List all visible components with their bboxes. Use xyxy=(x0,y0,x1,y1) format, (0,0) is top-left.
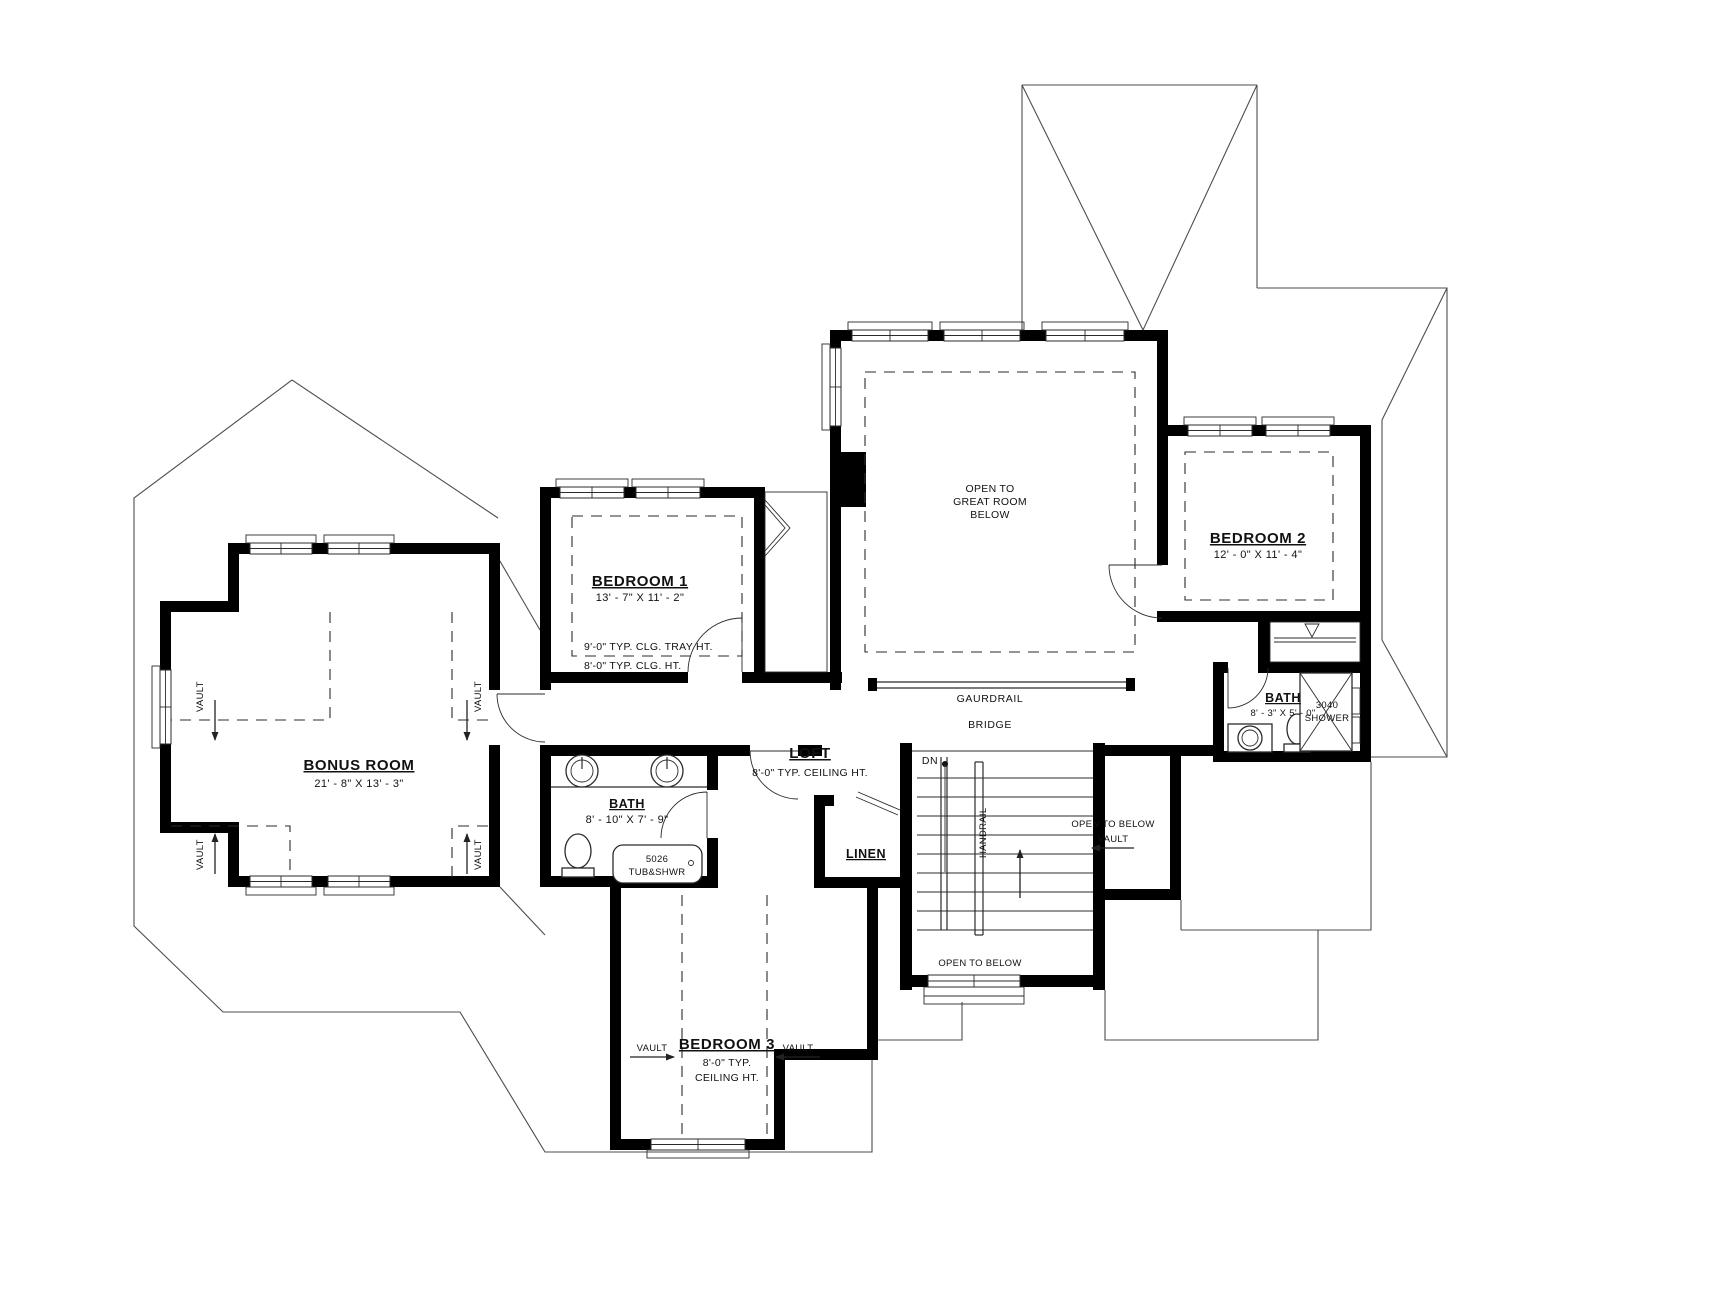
vault-label-bed3-right: VAULT xyxy=(783,1043,814,1054)
vault-label-bonus-tl: VAULT xyxy=(195,681,206,712)
walls xyxy=(160,330,1371,1150)
vault-label-bed3-left: VAULT xyxy=(637,1043,668,1054)
dn-label: DN xyxy=(922,755,938,767)
bedroom2-title: BEDROOM 2 xyxy=(1210,530,1306,547)
great-room-open-line3: BELOW xyxy=(970,509,1009,521)
vault-label-bonus-tr: VAULT xyxy=(473,681,484,712)
open-below-vault-line1: OPEN TO BELOW xyxy=(1071,819,1154,830)
bedroom3-note2: CEILING HT. xyxy=(695,1072,759,1084)
great-room-open-line1: OPEN TO xyxy=(966,483,1015,495)
loft-title: LOFT xyxy=(789,745,831,762)
tub-label-1: 5026 xyxy=(646,854,668,865)
linen-door xyxy=(856,792,900,815)
handrail-label: HANDRAIL xyxy=(978,808,989,858)
vault-label-bonus-bl: VAULT xyxy=(195,839,206,870)
bath2-title: BATH xyxy=(1265,691,1301,705)
shower-label-2: SHOWER xyxy=(1305,713,1350,724)
staircase xyxy=(912,751,1093,935)
bedroom1-tray-note: 9'-0" TYP. CLG. TRAY HT. xyxy=(584,641,713,653)
bedroom2-dims: 12' - 0" X 11' - 4" xyxy=(1214,549,1303,561)
bonus-room-dims: 21' - 8" X 13' - 3" xyxy=(314,778,403,790)
floor-plan-page: BONUS ROOM 21' - 8" X 13' - 3" BEDROOM 1… xyxy=(0,0,1710,1290)
bedroom1-clg-note: 8'-0" TYP. CLG. HT. xyxy=(584,660,681,672)
vault-label-bonus-br: VAULT xyxy=(473,839,484,870)
bedroom1-dims: 13' - 7" X 11' - 2" xyxy=(596,592,685,604)
bonus-room-title: BONUS ROOM xyxy=(304,757,415,774)
bedroom1-closet xyxy=(765,492,827,672)
bath1-title: BATH xyxy=(609,797,645,811)
linen-title: LINEN xyxy=(846,847,886,861)
floor-plan-drawing: BONUS ROOM 21' - 8" X 13' - 3" BEDROOM 1… xyxy=(0,0,1710,1290)
closet-bifold-doors xyxy=(765,500,790,556)
open-below-vault-line2: VAULT xyxy=(1098,834,1129,845)
bedroom3-title: BEDROOM 3 xyxy=(679,1036,775,1053)
guardrail-label: GAURDRAIL xyxy=(957,693,1024,705)
loft-note: 8'-0" TYP. CEILING HT. xyxy=(752,767,868,779)
guardrail xyxy=(877,682,1126,688)
tub-label-2: TUB&SHWR xyxy=(629,867,686,878)
bedroom3-note1: 8'-0" TYP. xyxy=(703,1057,752,1069)
windows xyxy=(152,322,1334,1158)
great-room-open-line2: GREAT ROOM xyxy=(953,496,1027,508)
bridge-label: BRIDGE xyxy=(968,719,1012,731)
bath1-dims: 8' - 10" X 7' - 9" xyxy=(586,814,669,826)
shower-label-1: 3040 xyxy=(1316,700,1338,711)
bedroom1-title: BEDROOM 1 xyxy=(592,573,688,590)
open-below-stair-label: OPEN TO BELOW xyxy=(938,958,1021,969)
